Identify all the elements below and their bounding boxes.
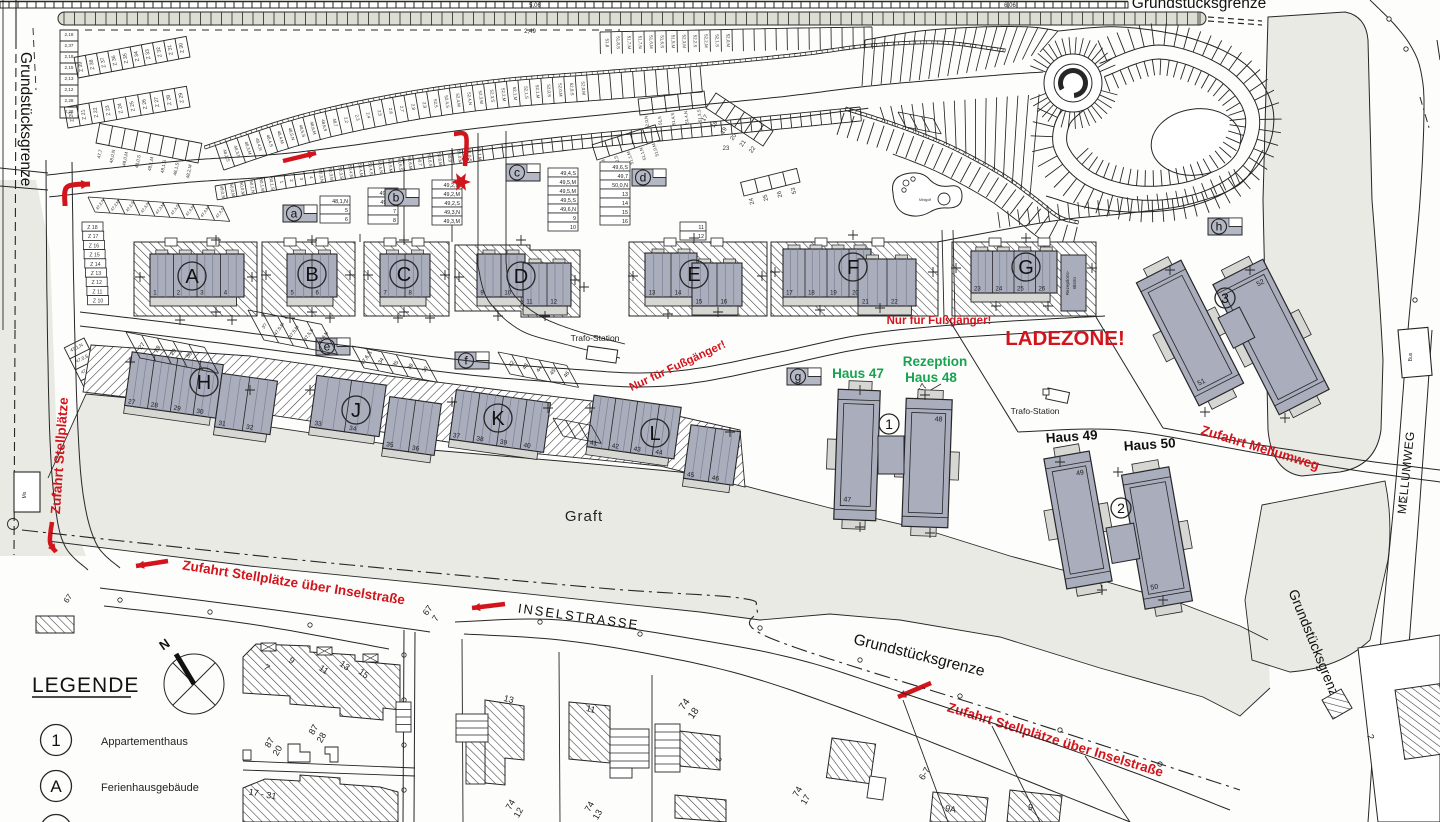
svg-text:9A: 9A <box>944 803 957 815</box>
svg-text:LADEZONE!: LADEZONE! <box>1005 327 1125 350</box>
svg-text:31: 31 <box>218 420 227 428</box>
svg-text:5: 5 <box>345 208 348 214</box>
svg-text:50: 50 <box>1150 584 1159 592</box>
svg-text:g: g <box>795 370 802 384</box>
svg-text:6,06: 6,06 <box>1004 3 1016 9</box>
svg-text:21: 21 <box>862 300 869 306</box>
svg-text:46: 46 <box>711 475 720 483</box>
svg-text:52,0,S: 52,0,S <box>569 83 575 96</box>
svg-text:52,2,S: 52,2,S <box>693 35 698 48</box>
svg-text:L: L <box>649 423 660 445</box>
svg-text:49,2,S: 49,2,S <box>444 201 460 207</box>
svg-text:Haus 47: Haus 47 <box>832 366 884 381</box>
svg-text:13: 13 <box>649 291 656 297</box>
svg-text:C: C <box>397 264 411 286</box>
svg-text:A: A <box>185 266 199 288</box>
svg-text:13: 13 <box>622 192 628 198</box>
svg-text:2,18: 2,18 <box>65 32 74 37</box>
svg-text:Z 18: Z 18 <box>87 225 97 231</box>
svg-text:Ms: Ms <box>22 491 28 498</box>
svg-text:49,6,N: 49,6,N <box>560 207 576 213</box>
svg-text:43: 43 <box>633 446 642 454</box>
svg-text:22: 22 <box>891 300 898 306</box>
svg-text:25: 25 <box>1017 287 1024 293</box>
svg-text:50,0,N: 50,0,N <box>612 183 628 189</box>
svg-text:K: K <box>491 408 505 430</box>
svg-text:Z 13: Z 13 <box>91 271 101 277</box>
svg-text:9: 9 <box>573 216 576 222</box>
svg-text:52,3,M: 52,3,M <box>682 35 687 49</box>
svg-text:A: A <box>50 777 62 796</box>
svg-text:52,1,S: 52,1,S <box>715 34 720 47</box>
svg-text:38: 38 <box>476 435 485 443</box>
svg-text:Z 12: Z 12 <box>92 280 102 286</box>
svg-text:24: 24 <box>996 287 1003 293</box>
svg-text:2,15: 2,15 <box>65 65 74 70</box>
svg-text:Ferienhausgebäude: Ferienhausgebäude <box>101 782 199 794</box>
svg-text:26: 26 <box>1039 287 1046 293</box>
svg-text:Nur für Fußgänger!: Nur für Fußgänger! <box>887 315 992 327</box>
svg-text:44: 44 <box>655 449 664 457</box>
svg-text:Rezeption: Rezeption <box>903 354 968 369</box>
svg-text:1: 1 <box>885 416 893 432</box>
svg-text:2: 2 <box>1117 500 1125 516</box>
svg-text:49,5,S: 49,5,S <box>560 198 576 204</box>
svg-text:29: 29 <box>173 405 182 413</box>
svg-text:51,8: 51,8 <box>605 39 610 48</box>
svg-text:14: 14 <box>675 291 682 297</box>
svg-text:2,28: 2,28 <box>65 109 74 114</box>
svg-text:2,37: 2,37 <box>65 43 74 48</box>
svg-text:12: 12 <box>698 234 704 240</box>
svg-text:5,06: 5,06 <box>529 3 541 9</box>
svg-text:51,6,M: 51,6,M <box>649 35 654 49</box>
svg-text:2,18: 2,18 <box>65 54 74 59</box>
svg-text:11: 11 <box>698 225 704 231</box>
svg-text:47: 47 <box>843 497 851 504</box>
svg-text:49,2,M: 49,2,M <box>444 192 461 198</box>
svg-text:Haus 48: Haus 48 <box>905 370 957 385</box>
svg-text:40: 40 <box>523 442 532 450</box>
svg-text:52,0,M: 52,0,M <box>580 81 586 95</box>
svg-text:49,5,M: 49,5,M <box>560 180 577 186</box>
svg-text:16: 16 <box>622 219 628 225</box>
svg-text:2,12: 2,12 <box>65 87 74 92</box>
svg-text:48,1,N: 48,1,N <box>332 199 348 205</box>
svg-text:E: E <box>687 264 700 286</box>
svg-text:51,8,S: 51,8,S <box>616 36 621 49</box>
svg-text:52,0,M: 52,0,M <box>726 34 731 48</box>
svg-text:LEGENDE: LEGENDE <box>32 674 139 697</box>
svg-text:F: F <box>847 257 859 279</box>
svg-text:10: 10 <box>504 291 511 297</box>
svg-text:45: 45 <box>687 471 696 479</box>
svg-text:32: 32 <box>246 424 255 432</box>
svg-text:14: 14 <box>622 201 628 207</box>
svg-text:49,4,S: 49,4,S <box>560 171 576 177</box>
svg-text:18: 18 <box>808 291 815 297</box>
svg-text:51,7,M: 51,7,M <box>627 36 632 50</box>
svg-text:D: D <box>514 266 528 288</box>
svg-text:51,6,S: 51,6,S <box>660 35 665 48</box>
svg-text:10: 10 <box>570 225 576 231</box>
svg-text:c: c <box>514 166 520 180</box>
svg-text:17: 17 <box>786 291 793 297</box>
svg-text:51,7,N: 51,7,N <box>638 36 643 49</box>
svg-text:15: 15 <box>622 210 628 216</box>
svg-text:49,3,M: 49,3,M <box>444 219 461 225</box>
svg-text:Bistro: Bistro <box>1072 277 1077 289</box>
svg-text:6: 6 <box>345 217 348 223</box>
svg-text:15: 15 <box>696 300 703 306</box>
svg-text:52,0,S: 52,0,S <box>546 84 552 97</box>
svg-text:52,2,M: 52,2,M <box>704 34 709 48</box>
svg-text:Graft: Graft <box>565 508 603 525</box>
svg-text:1: 1 <box>51 731 60 750</box>
svg-text:48: 48 <box>935 416 943 423</box>
svg-text:Z 17: Z 17 <box>88 234 98 240</box>
svg-text:34: 34 <box>349 425 358 433</box>
svg-text:8: 8 <box>393 218 396 224</box>
svg-text:H: H <box>197 372 211 394</box>
svg-text:39: 39 <box>499 439 508 447</box>
svg-text:a: a <box>291 207 298 221</box>
svg-text:2,49: 2,49 <box>524 29 536 35</box>
svg-text:Z 10: Z 10 <box>93 299 103 305</box>
svg-text:51,5,M: 51,5,M <box>671 35 676 49</box>
svg-text:23: 23 <box>723 146 730 152</box>
svg-text:G: G <box>1018 257 1034 279</box>
svg-text:B: B <box>305 264 318 286</box>
svg-text:Z 11: Z 11 <box>92 289 102 295</box>
svg-text:49,7: 49,7 <box>618 174 629 180</box>
svg-text:11: 11 <box>526 300 533 306</box>
svg-text:28: 28 <box>150 401 159 409</box>
svg-text:d: d <box>640 171 647 185</box>
svg-text:42: 42 <box>611 443 620 451</box>
svg-text:2,13: 2,13 <box>65 76 74 81</box>
svg-text:33: 33 <box>314 420 323 428</box>
svg-text:Z 14: Z 14 <box>90 262 100 268</box>
svg-text:23: 23 <box>974 287 981 293</box>
svg-text:41: 41 <box>589 440 598 448</box>
svg-text:35: 35 <box>386 441 395 449</box>
svg-text:h: h <box>1216 220 1223 234</box>
svg-text:49,5,M: 49,5,M <box>560 189 577 195</box>
svg-text:16: 16 <box>721 300 728 306</box>
svg-text:Minigolf: Minigolf <box>919 198 931 202</box>
svg-text:52,0,M: 52,0,M <box>557 83 563 97</box>
svg-text:7: 7 <box>393 209 396 215</box>
svg-text:3: 3 <box>1221 290 1229 306</box>
svg-text:36: 36 <box>412 445 421 453</box>
svg-text:Rezeptions-: Rezeptions- <box>1065 270 1070 295</box>
svg-text:Z 15: Z 15 <box>89 253 99 259</box>
svg-text:12: 12 <box>550 300 557 306</box>
svg-text:37: 37 <box>452 432 461 440</box>
svg-text:Trafo-Station: Trafo-Station <box>1011 406 1060 416</box>
svg-text:J: J <box>351 400 361 422</box>
svg-text:b: b <box>393 191 400 205</box>
svg-text:30: 30 <box>196 408 205 416</box>
svg-text:49,6,S: 49,6,S <box>612 165 628 171</box>
svg-text:Bus: Bus <box>1408 352 1414 361</box>
svg-text:27: 27 <box>127 398 136 406</box>
svg-text:19: 19 <box>830 291 837 297</box>
svg-text:Grundstücksgrenze: Grundstücksgrenze <box>17 52 34 186</box>
svg-text:49,3,N: 49,3,N <box>444 210 460 216</box>
svg-text:Trafo-Station: Trafo-Station <box>571 333 620 343</box>
svg-text:49: 49 <box>1076 469 1085 477</box>
svg-text:Appartementhaus: Appartementhaus <box>101 736 188 748</box>
svg-text:2,28: 2,28 <box>65 98 74 103</box>
svg-text:Grundstücksgrenze: Grundstücksgrenze <box>1132 0 1266 12</box>
svg-text:Z 16: Z 16 <box>89 243 99 249</box>
